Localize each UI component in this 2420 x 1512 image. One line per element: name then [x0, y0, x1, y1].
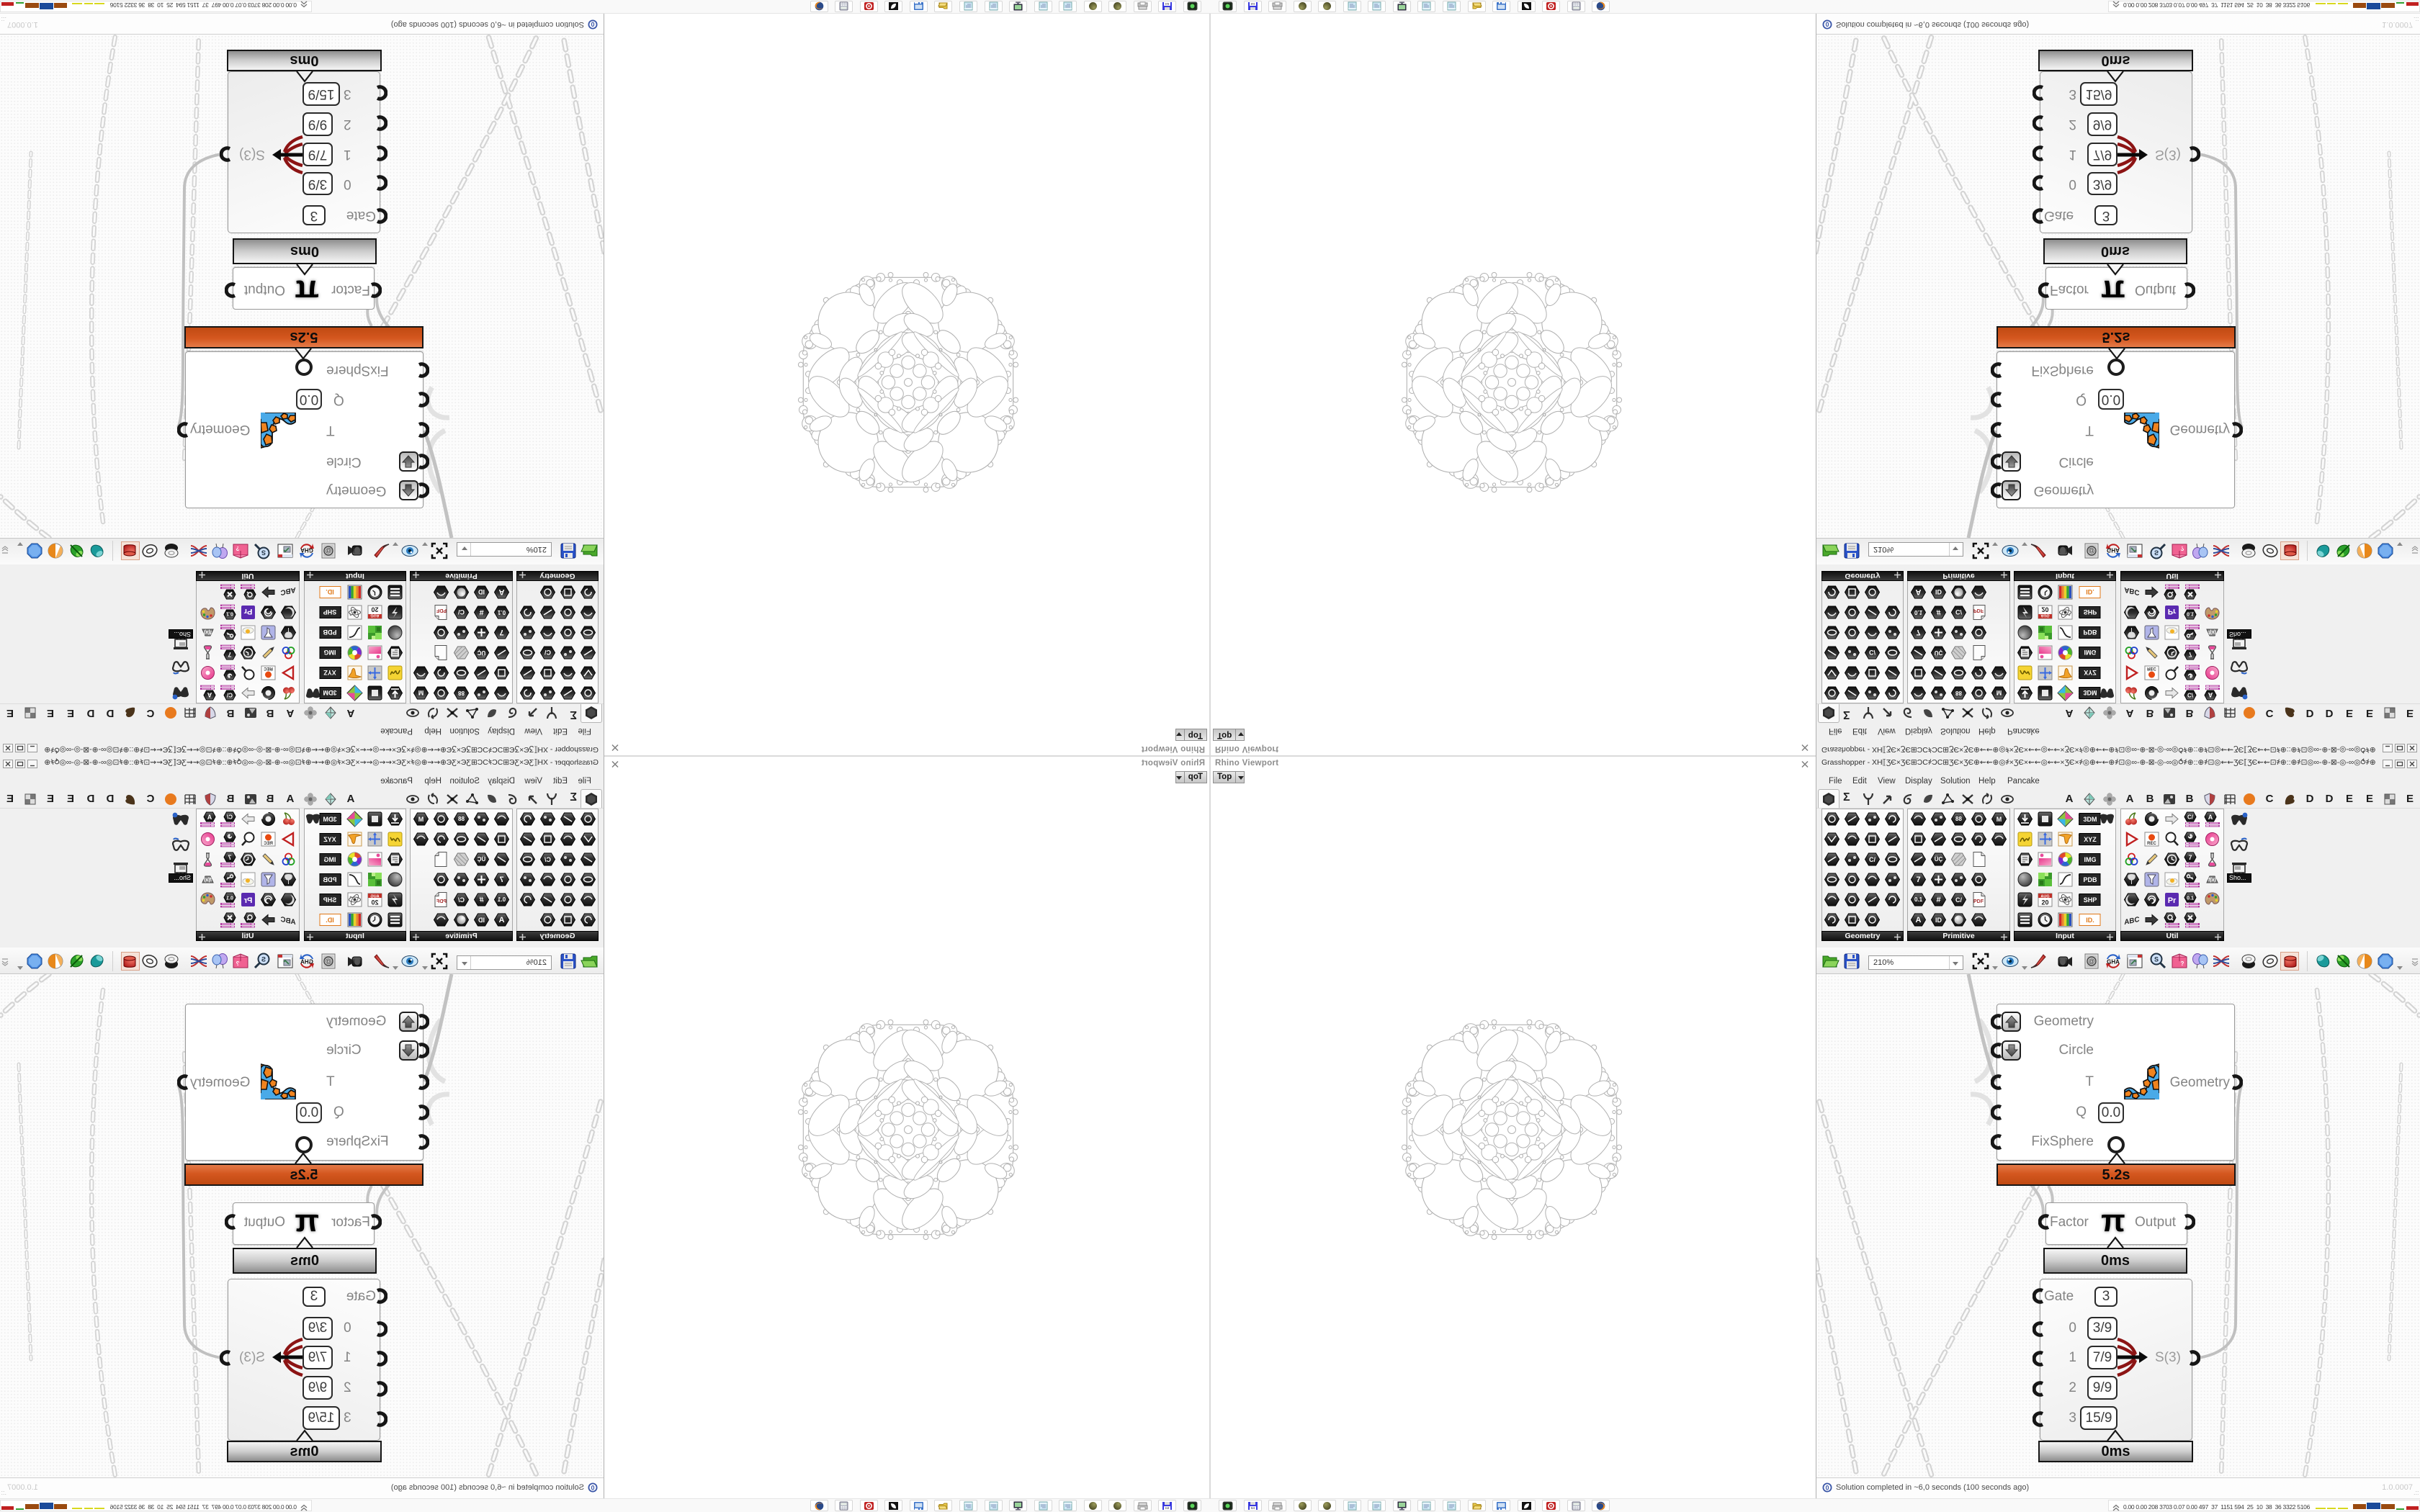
- svg-text:0: 0: [591, 1484, 594, 1491]
- svg-text:AUG: AUG: [370, 894, 379, 899]
- svg-text:C/: C/: [1869, 856, 1875, 863]
- svg-text:0.1: 0.1: [226, 611, 233, 616]
- svg-text:64: 64: [1251, 2, 1255, 6]
- svg-text:S: S: [261, 549, 266, 557]
- svg-text:C/: C/: [458, 896, 465, 904]
- svg-text:0: 0: [1825, 1484, 1829, 1491]
- svg-text:20: 20: [2041, 899, 2048, 906]
- svg-text:#: #: [479, 608, 483, 616]
- svg-text:C/: C/: [1955, 608, 1962, 616]
- svg-text:GHA: GHA: [2107, 959, 2120, 966]
- svg-text:20: 20: [371, 606, 378, 613]
- svg-text:C/: C/: [1869, 649, 1875, 656]
- svg-text:ÜÇ: ÜÇ: [478, 856, 486, 863]
- svg-text:ABC: ABC: [2123, 916, 2140, 927]
- svg-text:PDB: PDB: [323, 876, 337, 883]
- svg-text:#: #: [1936, 608, 1940, 616]
- svg-text:PDB: PDB: [2083, 876, 2097, 883]
- svg-text:?: ?: [2181, 960, 2184, 967]
- svg-text:S: S: [261, 956, 266, 963]
- svg-text:IMG: IMG: [2084, 649, 2097, 656]
- svg-text:S: S: [2154, 956, 2159, 963]
- svg-text:f(x): f(x): [203, 629, 212, 634]
- svg-text:ID.: ID.: [326, 917, 334, 924]
- svg-text:ÜÇ: ÜÇ: [1935, 649, 1943, 656]
- svg-text:3DM: 3DM: [2083, 816, 2097, 823]
- svg-text:88: 88: [458, 816, 465, 822]
- svg-text:IMG: IMG: [324, 649, 336, 656]
- svg-text:#: #: [1936, 896, 1940, 904]
- svg-text:C/: C/: [2187, 692, 2194, 698]
- svg-text:REC: REC: [2147, 842, 2156, 846]
- svg-text:0.1: 0.1: [1914, 896, 1923, 903]
- svg-text:IMG: IMG: [2084, 856, 2097, 863]
- svg-text:REC: REC: [264, 666, 273, 670]
- svg-text:f(x): f(x): [203, 878, 212, 883]
- svg-text:f(x): f(x): [2208, 878, 2217, 883]
- svg-text:C/: C/: [226, 692, 233, 698]
- svg-text:Pr: Pr: [243, 896, 252, 905]
- svg-text:A: A: [2208, 691, 2213, 698]
- svg-text:0.1: 0.1: [226, 896, 233, 901]
- svg-text:SHP: SHP: [323, 608, 337, 616]
- svg-text:GHA: GHA: [2107, 547, 2120, 554]
- svg-text:88: 88: [1955, 816, 1962, 822]
- svg-text:7: 7: [228, 651, 231, 658]
- svg-text:XYZ: XYZ: [2084, 669, 2097, 676]
- svg-text:0.1: 0.1: [497, 896, 506, 903]
- svg-text:REC: REC: [2147, 666, 2156, 670]
- svg-text:M: M: [418, 689, 424, 696]
- svg-text:0: 0: [591, 21, 594, 28]
- svg-text:A: A: [207, 814, 212, 821]
- svg-text:C/: C/: [544, 649, 551, 656]
- svg-text:7: 7: [499, 876, 503, 884]
- svg-text:7: 7: [1916, 876, 1920, 884]
- svg-text:Pr: Pr: [2168, 607, 2177, 616]
- svg-text:M: M: [1996, 816, 2002, 823]
- svg-text:SHP: SHP: [2084, 608, 2097, 616]
- svg-text:ÜÇ: ÜÇ: [478, 649, 486, 656]
- svg-text:7: 7: [499, 628, 503, 636]
- svg-text:@: @: [2088, 958, 2094, 965]
- svg-text:A: A: [498, 916, 504, 924]
- svg-text:ID: ID: [478, 588, 485, 595]
- svg-text:ABC: ABC: [280, 916, 297, 927]
- svg-text:20: 20: [2041, 606, 2048, 613]
- svg-text:@: @: [325, 958, 331, 965]
- svg-text:C/: C/: [544, 856, 551, 863]
- svg-text:Pr: Pr: [243, 607, 252, 616]
- svg-text:C/: C/: [2187, 814, 2194, 821]
- svg-text:A: A: [1916, 588, 1922, 596]
- svg-text:7: 7: [228, 854, 231, 861]
- svg-text:64: 64: [1165, 2, 1170, 6]
- svg-text:SHP: SHP: [2084, 896, 2097, 904]
- svg-text:3DM: 3DM: [323, 816, 336, 823]
- svg-text:@: @: [325, 547, 331, 554]
- svg-text:0.1: 0.1: [2187, 611, 2194, 616]
- svg-text:ÜÇ: ÜÇ: [1935, 856, 1943, 863]
- svg-text:AUG: AUG: [2040, 894, 2049, 899]
- svg-text:?: ?: [236, 960, 239, 967]
- svg-text:M: M: [418, 816, 424, 823]
- svg-text:0: 0: [1825, 21, 1829, 28]
- svg-text:PDF: PDF: [436, 899, 447, 904]
- svg-text:ABC: ABC: [280, 585, 297, 597]
- svg-text:A: A: [1916, 916, 1922, 924]
- svg-text:PDF: PDF: [1973, 608, 1984, 613]
- svg-text:IMG: IMG: [324, 856, 336, 863]
- svg-text:ID: ID: [1935, 588, 1942, 595]
- svg-text:88: 88: [458, 690, 465, 696]
- svg-text:?: ?: [2181, 545, 2184, 552]
- svg-text:PDB: PDB: [2083, 629, 2097, 636]
- svg-text:ID: ID: [1935, 917, 1942, 924]
- svg-text:#: #: [479, 896, 483, 904]
- svg-text:PDB: PDB: [323, 629, 337, 636]
- svg-text:PDF: PDF: [436, 608, 447, 613]
- svg-text:C/: C/: [1955, 896, 1962, 904]
- svg-text:XYZ: XYZ: [2084, 836, 2097, 843]
- svg-text:ABC: ABC: [2123, 585, 2140, 597]
- svg-text:AUG: AUG: [2040, 613, 2049, 618]
- svg-text:88: 88: [1955, 690, 1962, 696]
- svg-text:ID.: ID.: [326, 588, 334, 595]
- svg-text:?: ?: [236, 545, 239, 552]
- svg-text:64: 64: [1251, 1506, 1255, 1510]
- svg-text:AUG: AUG: [370, 613, 379, 618]
- svg-text:@: @: [2088, 547, 2094, 554]
- svg-text:7: 7: [1916, 628, 1920, 636]
- svg-text:64: 64: [1165, 1506, 1170, 1510]
- svg-text:A: A: [207, 691, 212, 698]
- svg-text:0.1: 0.1: [1914, 609, 1923, 616]
- svg-text:0.1: 0.1: [497, 609, 506, 616]
- svg-text:M: M: [1996, 689, 2002, 696]
- svg-text:XYZ: XYZ: [323, 669, 336, 676]
- svg-text:Pr: Pr: [2168, 896, 2177, 905]
- svg-text:ID.: ID.: [2086, 588, 2094, 595]
- svg-text:C/: C/: [226, 814, 233, 821]
- svg-text:GHA: GHA: [300, 959, 313, 966]
- svg-text:GHA: GHA: [300, 547, 313, 554]
- svg-text:ID: ID: [478, 917, 485, 924]
- svg-text:7: 7: [2188, 854, 2192, 861]
- svg-text:S: S: [2154, 549, 2159, 557]
- svg-text:SHP: SHP: [323, 896, 337, 904]
- svg-text:C/: C/: [458, 608, 465, 616]
- svg-text:7: 7: [2188, 651, 2192, 658]
- svg-text:A: A: [2208, 814, 2213, 821]
- svg-text:f(x): f(x): [2208, 629, 2217, 634]
- svg-text:PDF: PDF: [1973, 899, 1984, 904]
- svg-text:20: 20: [371, 899, 378, 906]
- svg-text:0.1: 0.1: [2187, 896, 2194, 901]
- svg-text:A: A: [498, 588, 504, 596]
- svg-text:XYZ: XYZ: [323, 836, 336, 843]
- svg-text:ID.: ID.: [2086, 917, 2094, 924]
- svg-text:3DM: 3DM: [323, 689, 336, 696]
- svg-text:3DM: 3DM: [2083, 689, 2097, 696]
- svg-text:REC: REC: [264, 842, 273, 846]
